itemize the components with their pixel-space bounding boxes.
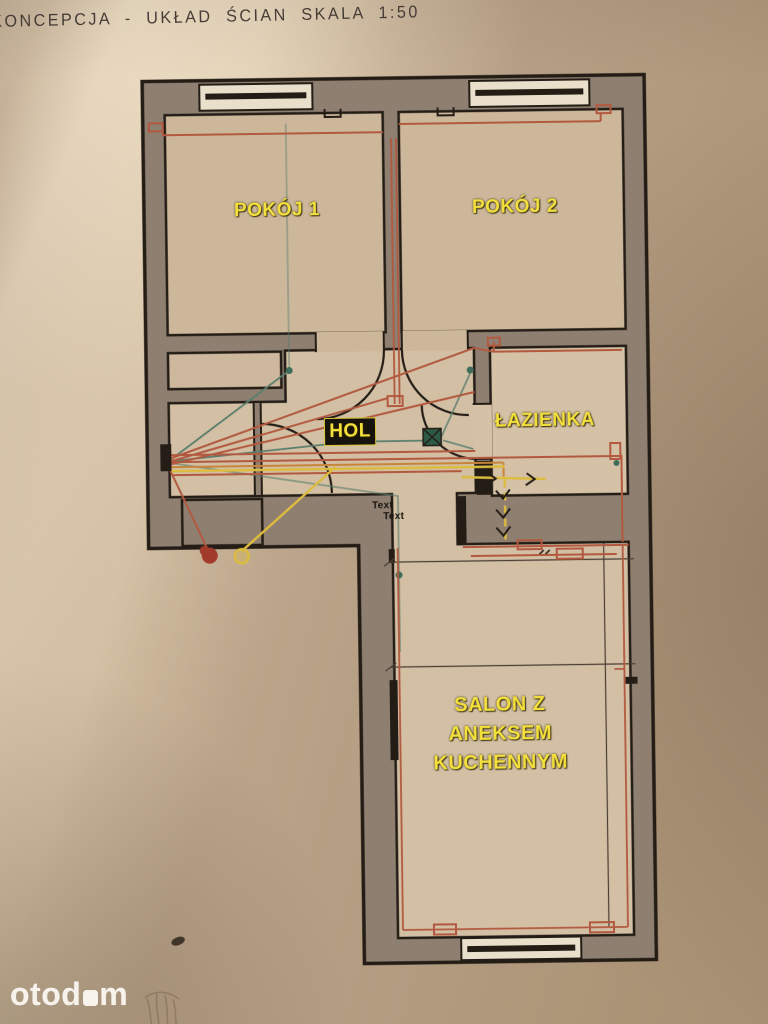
square-o-icon <box>83 990 98 1006</box>
floor-plan: POKÓJ 1 POKÓJ 2 HOL ŁAZIENKA SALON Z ANE… <box>0 0 768 1024</box>
hall-label: HOL <box>329 420 371 443</box>
logo-text-prefix: otod <box>10 976 81 1012</box>
bathroom-label: ŁAZIENKA <box>475 409 615 433</box>
room2-label: POKÓJ 2 <box>455 196 575 220</box>
living-label-line2: ANEKSEM <box>410 718 590 750</box>
hall-alcove-floor <box>168 352 281 390</box>
living-wall-bar-tall <box>390 680 399 760</box>
room2-door-gap <box>402 330 468 351</box>
hall-partition-wall <box>254 402 262 496</box>
room1-floor <box>165 112 386 335</box>
photo-artifacts <box>144 935 187 1024</box>
room2-floor <box>399 109 626 332</box>
hall-label-box: HOL <box>324 417 376 446</box>
photographed-floor-plan: POKÓJ 1 POKÓJ 2 HOL ŁAZIENKA SALON Z ANE… <box>0 0 768 1024</box>
living-right-wall-tick <box>625 677 637 684</box>
electrical-panel <box>160 444 171 471</box>
room1-label: POKÓJ 1 <box>217 199 337 223</box>
pencil-scribble <box>145 992 180 1024</box>
text-placeholder-1: Text <box>372 500 393 511</box>
logo-text-suffix: m <box>99 976 128 1012</box>
yellow-ring-symbol <box>235 549 249 563</box>
smudge-mark <box>170 935 186 947</box>
living-room-label: SALON Z ANEKSEM KUCHENNYM <box>410 689 591 779</box>
text-placeholder-2: Text <box>383 511 404 522</box>
living-label-line3: KUCHENNYM <box>410 747 590 779</box>
doorway-jamb-bar <box>458 496 467 544</box>
otodom-watermark: otodm <box>10 976 128 1013</box>
room1-door-gap <box>316 331 384 352</box>
living-label-line1: SALON Z <box>410 689 590 721</box>
